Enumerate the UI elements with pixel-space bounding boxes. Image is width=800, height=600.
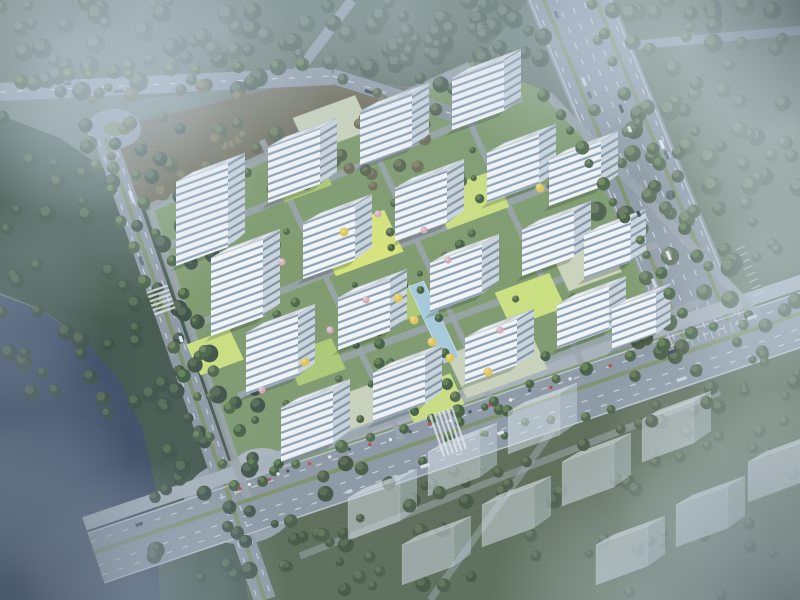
scene-svg xyxy=(0,0,800,600)
aerial-render-image xyxy=(0,0,800,600)
atmosphere xyxy=(0,0,800,600)
